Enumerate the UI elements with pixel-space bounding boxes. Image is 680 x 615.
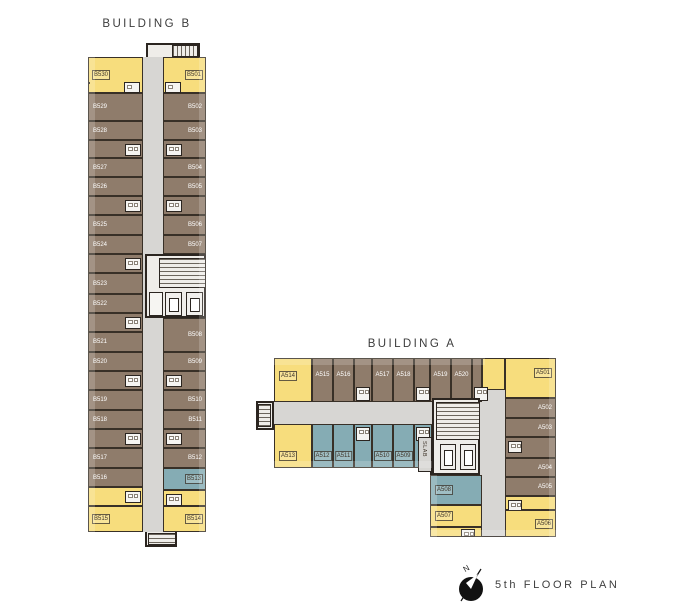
- floor-plan-label: 5th FLOOR PLAN: [495, 579, 619, 591]
- utility-strip: [88, 82, 90, 84]
- unit-a510: A510: [372, 424, 393, 468]
- unit-label: A509: [394, 451, 412, 461]
- unit-a514: A514: [274, 358, 312, 402]
- fixture-detail: [175, 378, 179, 382]
- bathroom-fixture: [356, 427, 370, 441]
- fixture-detail: [127, 85, 132, 89]
- fixture-detail: [359, 390, 364, 394]
- fixture-detail: [169, 203, 174, 207]
- unit-b525: B525: [88, 215, 143, 235]
- stairs-hatch: [148, 533, 176, 545]
- fixture-detail: [134, 378, 138, 382]
- utility-strip: [354, 424, 372, 468]
- fixture-detail: [477, 390, 482, 394]
- unit-b504: B504: [163, 158, 206, 177]
- unit-label: A512: [313, 451, 331, 461]
- bathroom-fixture: [166, 144, 182, 156]
- unit-b523: B523: [88, 273, 143, 294]
- utility-strip: [163, 196, 206, 215]
- unit-a512: A512: [312, 424, 333, 468]
- unit-label: B522: [92, 300, 108, 308]
- unit-a508: A508: [430, 475, 482, 505]
- bathroom-fixture: [508, 441, 522, 453]
- bathroom-fixture: [125, 144, 141, 156]
- unit-a501: A501: [505, 358, 556, 398]
- unit-label: A513: [279, 451, 297, 461]
- utility-strip: [88, 313, 143, 332]
- utility-strip: [505, 437, 556, 458]
- unit-a505: A505: [505, 477, 556, 496]
- utility-strip: [88, 254, 143, 273]
- unit-label: B511: [187, 416, 203, 424]
- elevator-car: [444, 450, 453, 466]
- unit-label: A511: [335, 451, 353, 461]
- unit-a507: A507: [430, 505, 482, 527]
- unit-b528: B528: [88, 121, 143, 140]
- plan-footer: N 5th FLOOR PLAN: [455, 563, 675, 608]
- utility-strip: [88, 371, 143, 390]
- utility-strip: [88, 429, 143, 448]
- elevator-cell: [165, 292, 182, 316]
- unit-label: A518: [395, 371, 411, 379]
- fixture-detail: [134, 203, 138, 207]
- unit-label: B523: [92, 280, 108, 288]
- fixture-detail: [169, 147, 174, 151]
- unit-label: A505: [537, 483, 553, 491]
- unit-label: B519: [92, 396, 108, 404]
- unit-label: B518: [92, 416, 108, 424]
- slab-cell: SLAB: [418, 437, 432, 472]
- bathroom-fixture: [125, 433, 141, 445]
- compass-north-icon: N: [455, 563, 489, 605]
- utility-strip: [414, 358, 430, 402]
- unit-b512: B512: [163, 448, 206, 468]
- unit-label: B503: [187, 127, 203, 135]
- unit-label: B526: [92, 183, 108, 191]
- unit-a502: A502: [505, 398, 556, 418]
- fixture-detail: [175, 497, 179, 501]
- stairs-hatch: [436, 402, 480, 440]
- bathroom-fixture: [166, 494, 182, 506]
- unit-label: A502: [537, 404, 553, 412]
- unit-b520: B520: [88, 352, 143, 371]
- building-a-plan: A514A515A516A517A518A519A520A513A512A511…: [256, 352, 556, 540]
- utility-strip: [88, 140, 143, 158]
- fixture-detail: [511, 444, 516, 448]
- unit-b508: B508: [163, 318, 206, 352]
- slab-label: SLAB: [421, 441, 427, 457]
- unit-b522: B522: [88, 294, 143, 313]
- fixture-detail: [425, 390, 429, 394]
- unit-b526: B526: [88, 177, 143, 196]
- unit-a503: A503: [505, 418, 556, 437]
- unit-label: A501: [534, 368, 552, 378]
- unit-b505: B505: [163, 177, 206, 196]
- unit-label: B506: [187, 221, 203, 229]
- unit-a518: A518: [393, 358, 414, 402]
- unit-b527: B527: [88, 158, 143, 177]
- bathroom-fixture: [461, 529, 475, 537]
- unit-label: B530: [92, 70, 110, 80]
- unit-label: B501: [185, 70, 203, 80]
- fixture-detail: [470, 532, 474, 536]
- bathroom-fixture: [125, 200, 141, 212]
- unit-label: A515: [314, 371, 330, 379]
- utility-strip: [472, 358, 482, 402]
- fixture-detail: [419, 430, 424, 434]
- unit-b515: B515: [88, 506, 143, 532]
- unit-label: B517: [92, 454, 108, 462]
- unit-b506: B506: [163, 215, 206, 235]
- bathroom-fixture: [125, 258, 141, 270]
- bathroom-fixture: [125, 375, 141, 387]
- fixture-detail: [128, 378, 133, 382]
- unit-label: A503: [537, 424, 553, 432]
- entry-hall: [482, 358, 505, 390]
- fixture-detail: [169, 436, 174, 440]
- fixture-detail: [419, 390, 424, 394]
- unit-b521: B521: [88, 332, 143, 352]
- unit-label: B505: [187, 183, 203, 191]
- compass-n-label: N: [462, 563, 472, 574]
- fixture-detail: [175, 436, 179, 440]
- elevator-cell: [440, 444, 456, 470]
- utility-strip: [163, 490, 206, 506]
- unit-label: B513: [185, 474, 203, 484]
- unit-label: B510: [187, 396, 203, 404]
- unit-label: A520: [453, 371, 469, 379]
- shaft-cell: [149, 292, 163, 316]
- unit-label: B514: [185, 514, 203, 524]
- unit-b509: B509: [163, 352, 206, 371]
- utility-strip: [163, 429, 206, 448]
- bathroom-fixture: [166, 200, 182, 212]
- elevator-car: [190, 298, 200, 312]
- unit-label: A517: [374, 371, 390, 379]
- elevator-car: [169, 298, 179, 312]
- fixture-detail: [517, 444, 521, 448]
- utility-strip: [163, 140, 206, 158]
- fixture-detail: [128, 261, 133, 265]
- fixture-detail: [175, 147, 179, 151]
- fixture-detail: [134, 320, 138, 324]
- unit-a517: A517: [372, 358, 393, 402]
- unit-b524: B524: [88, 235, 143, 254]
- unit-b516: B516: [88, 468, 143, 487]
- unit-a509: A509: [393, 424, 414, 468]
- unit-label: B525: [92, 221, 108, 229]
- fixture-detail: [169, 497, 174, 501]
- bathroom-fixture: [165, 82, 181, 93]
- unit-a506: A506: [505, 510, 556, 537]
- fixture-detail: [517, 503, 521, 507]
- unit-b529: B529: [88, 93, 143, 121]
- unit-label: A519: [432, 371, 448, 379]
- unit-a513: A513: [274, 424, 312, 468]
- stairs-hatch: [258, 404, 271, 427]
- unit-label: A506: [535, 519, 553, 529]
- unit-a516: A516: [333, 358, 354, 402]
- fixture-detail: [365, 430, 369, 434]
- unit-b507: B507: [163, 235, 206, 254]
- unit-label: B524: [92, 241, 108, 249]
- fixture-detail: [134, 436, 138, 440]
- unit-label: A516: [335, 371, 351, 379]
- unit-label: B507: [187, 241, 203, 249]
- unit-label: B529: [92, 103, 108, 111]
- fixture-detail: [359, 430, 364, 434]
- fixture-detail: [511, 503, 516, 507]
- unit-b518: B518: [88, 410, 143, 429]
- unit-b511: B511: [163, 410, 206, 429]
- unit-label: A508: [435, 485, 453, 495]
- utility-strip: [163, 371, 206, 390]
- unit-b514: B514: [163, 506, 206, 532]
- building-b-plan: B530B529B528B527B526B525B524B523B522B521…: [88, 43, 206, 548]
- fixture-detail: [483, 390, 487, 394]
- bathroom-fixture: [416, 387, 430, 401]
- fixture-detail: [128, 203, 133, 207]
- fixture-detail: [128, 320, 133, 324]
- unit-a520: A520: [451, 358, 472, 402]
- fixture-detail: [128, 147, 133, 151]
- unit-b510: B510: [163, 390, 206, 410]
- fixture-detail: [175, 203, 179, 207]
- unit-label: B502: [187, 103, 203, 111]
- core-block: [432, 398, 480, 475]
- unit-a511: A511: [333, 424, 354, 468]
- bathroom-fixture: [166, 433, 182, 445]
- unit-label: B516: [92, 474, 108, 482]
- fixture-detail: [128, 436, 133, 440]
- unit-b517: B517: [88, 448, 143, 468]
- elevator-cell: [460, 444, 476, 470]
- fixture-detail: [169, 378, 174, 382]
- fixture-detail: [365, 390, 369, 394]
- unit-label: B508: [187, 331, 203, 339]
- unit-label: B520: [92, 358, 108, 366]
- unit-b513: B513: [163, 468, 206, 490]
- unit-label: B504: [187, 164, 203, 172]
- elevator-car: [464, 450, 473, 466]
- floor-plan-canvas: BUILDING B BUILDING A B530B529B528B527B5…: [0, 0, 680, 615]
- unit-label: A507: [435, 511, 453, 521]
- unit-a515: A515: [312, 358, 333, 402]
- fixture-detail: [134, 147, 138, 151]
- stairs-hatch: [159, 258, 206, 288]
- core-block: [145, 254, 206, 318]
- stairs-hatch: [172, 45, 198, 57]
- unit-label: B512: [187, 454, 203, 462]
- unit-label: A504: [537, 464, 553, 472]
- bathroom-fixture: [125, 317, 141, 329]
- fixture-detail: [464, 532, 469, 536]
- unit-label: B521: [92, 338, 108, 346]
- unit-label: B515: [92, 514, 110, 524]
- fixture-detail: [168, 85, 173, 89]
- fixture-detail: [134, 261, 138, 265]
- fixture-detail: [128, 494, 133, 498]
- unit-a504: A504: [505, 458, 556, 477]
- fixture-detail: [425, 430, 429, 434]
- utility-strip: [88, 487, 143, 506]
- building-a-title: BUILDING A: [352, 338, 472, 350]
- bathroom-fixture: [125, 491, 141, 503]
- unit-label: B509: [187, 358, 203, 366]
- fixture-detail: [134, 494, 138, 498]
- bathroom-fixture: [166, 375, 182, 387]
- elevator-cell: [186, 292, 203, 316]
- unit-label: A514: [279, 371, 297, 381]
- utility-strip: [505, 496, 556, 510]
- unit-b502: B502: [163, 93, 206, 121]
- unit-a519: A519: [430, 358, 451, 402]
- building-b-title: BUILDING B: [88, 18, 206, 30]
- unit-b503: B503: [163, 121, 206, 140]
- utility-strip: [88, 196, 143, 215]
- utility-strip: [354, 358, 372, 402]
- corridor: [482, 390, 505, 536]
- bathroom-fixture: [124, 82, 140, 93]
- bathroom-fixture: [356, 387, 370, 401]
- unit-b519: B519: [88, 390, 143, 410]
- unit-label: B528: [92, 127, 108, 135]
- unit-label: B527: [92, 164, 108, 172]
- unit-label: A510: [373, 451, 391, 461]
- utility-strip: [430, 527, 482, 537]
